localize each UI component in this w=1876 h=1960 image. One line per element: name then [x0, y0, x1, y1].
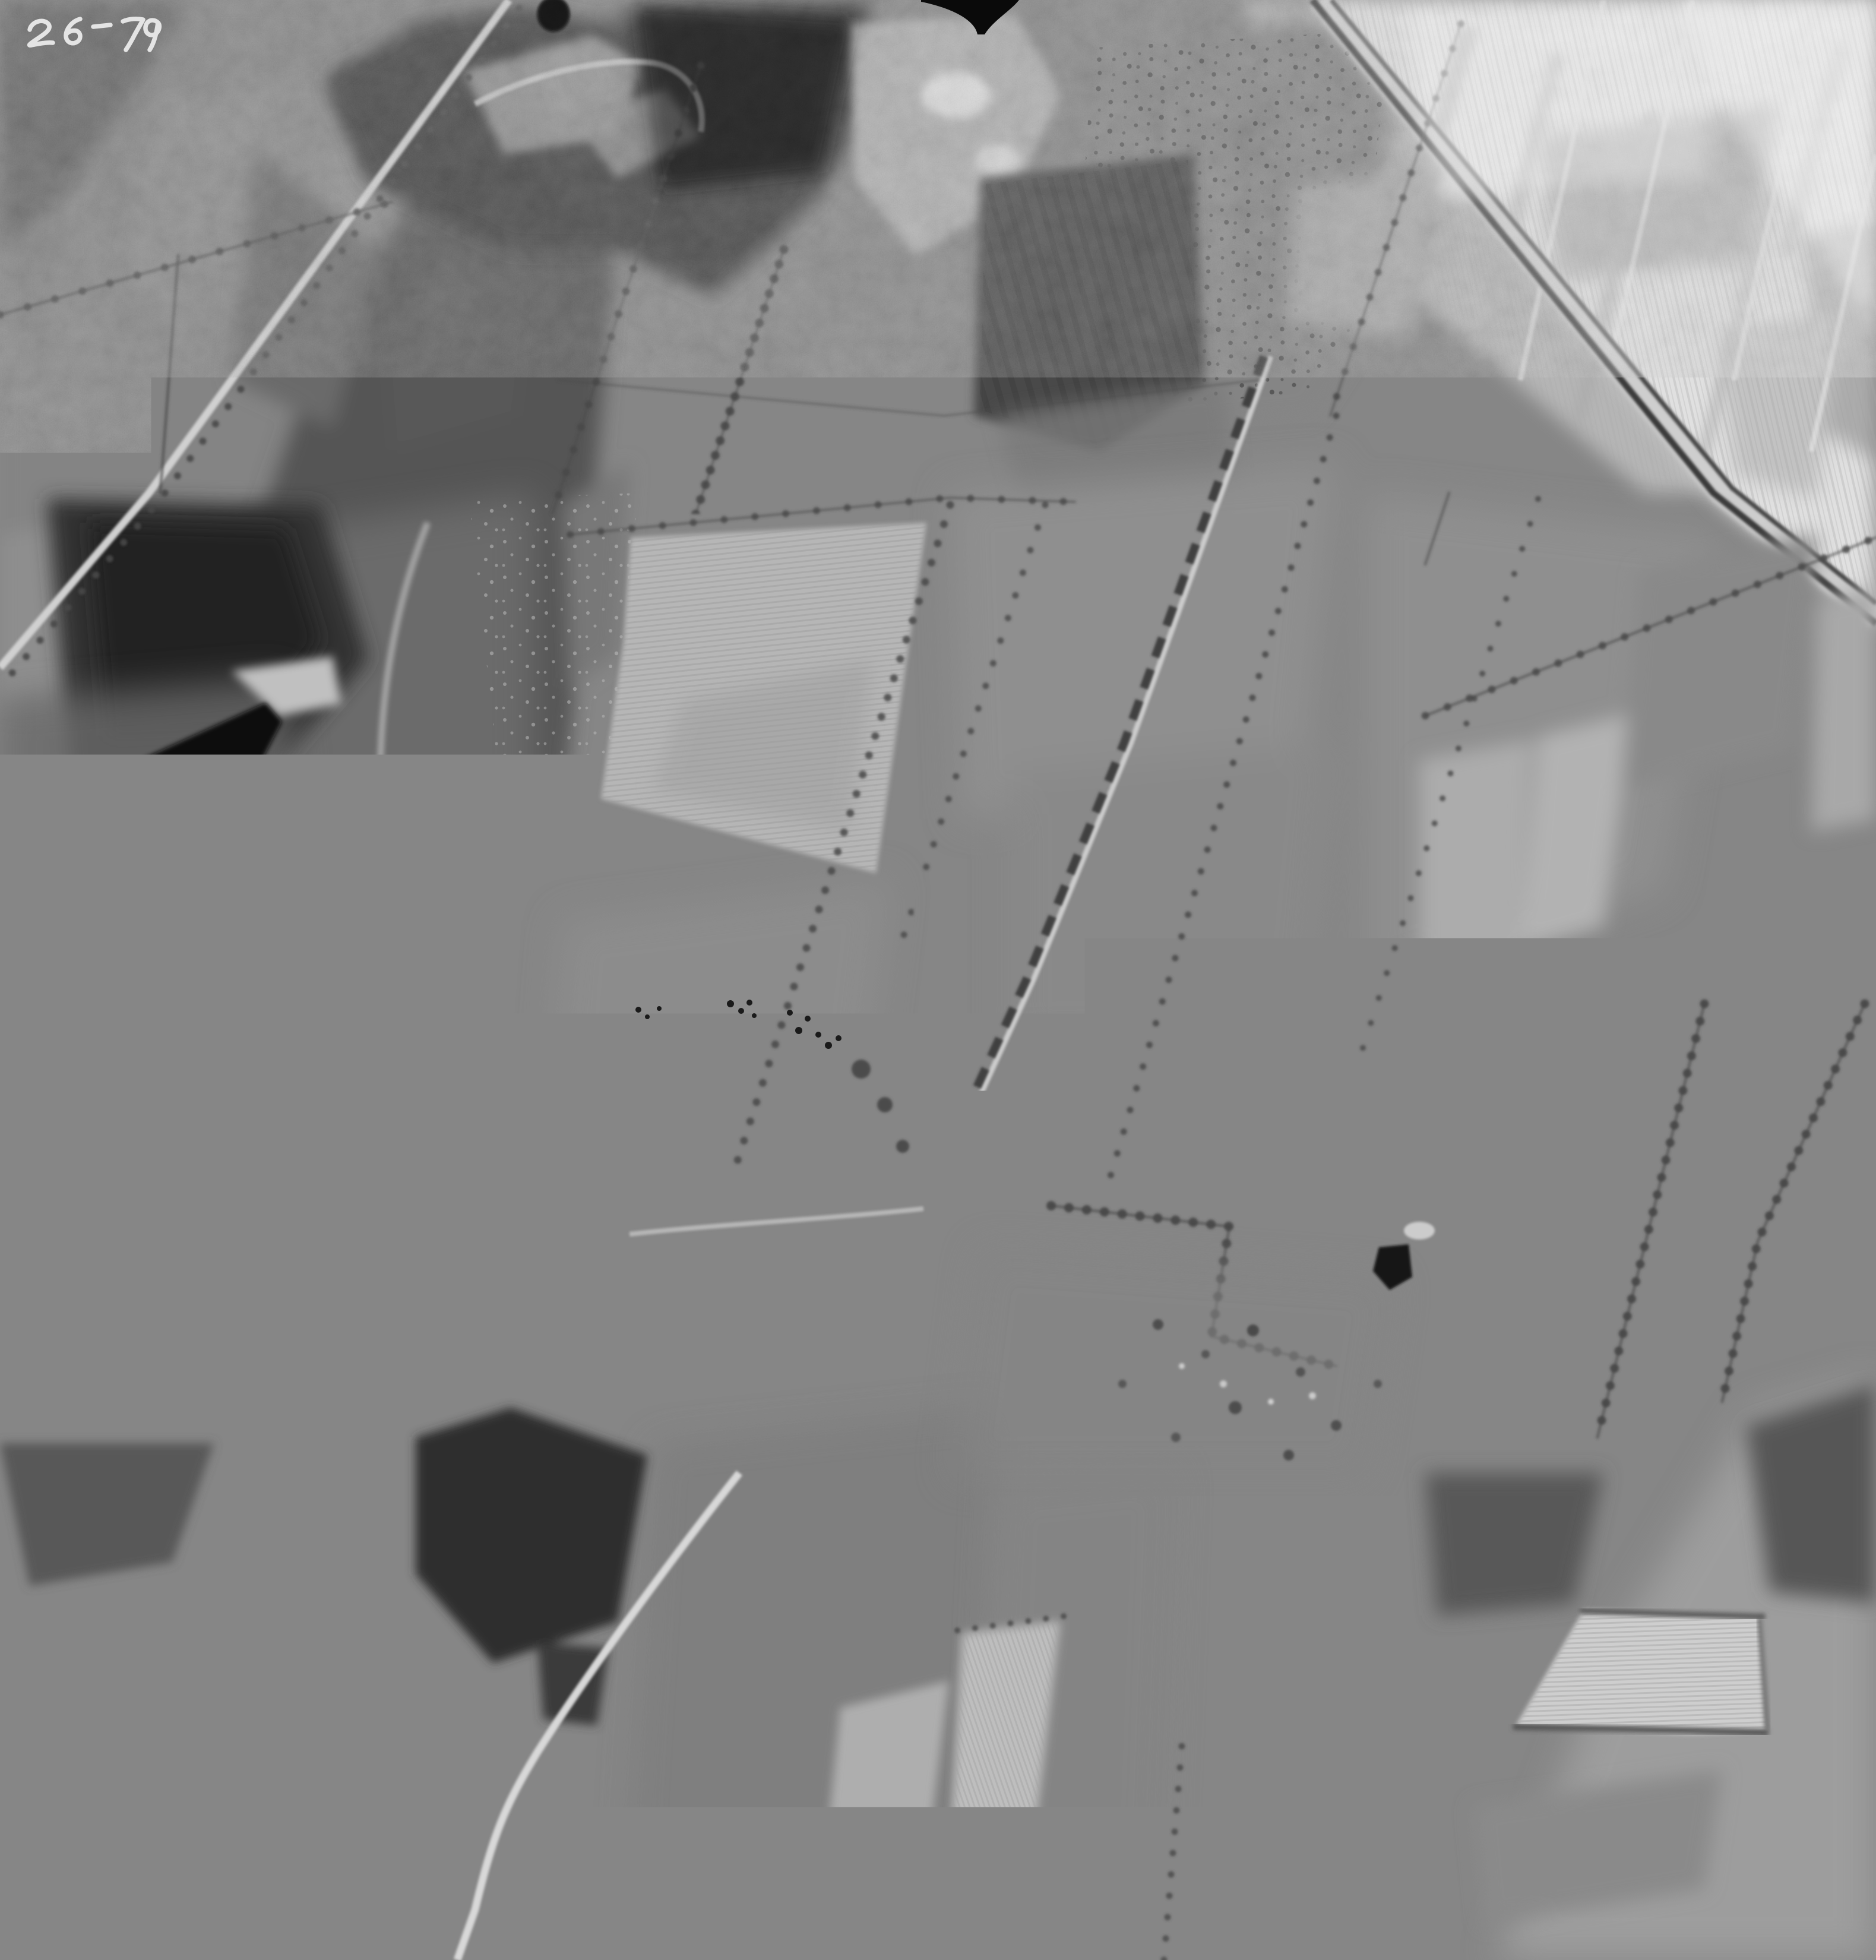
- svg-text:Archives de la Ville de Montré: Archives de la Ville de Montréal: [1727, 1947, 1874, 1959]
